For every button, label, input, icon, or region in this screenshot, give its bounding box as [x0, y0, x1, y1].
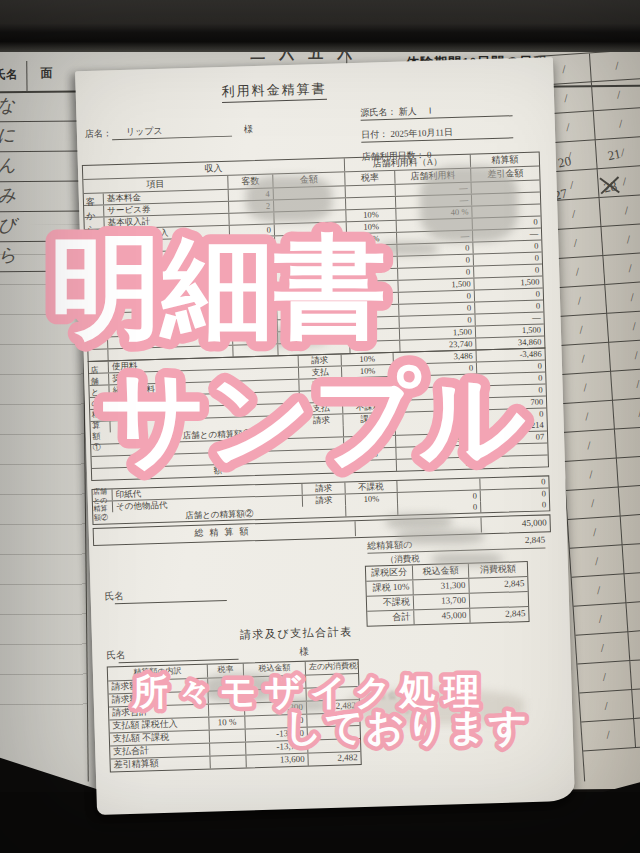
- slash-cell: /: [605, 281, 640, 313]
- name-column-header: 氏名: [0, 67, 17, 82]
- shop-name-value: リップス: [112, 123, 232, 141]
- slash-row: / /: [568, 513, 640, 549]
- slash-cell: /: [572, 574, 627, 606]
- diff-cell: 0: [474, 252, 542, 265]
- middle-name-label: 氏名: [104, 590, 123, 604]
- tax-table: 課税区分 税込金額 消費税額 課税 10% 31,300 2,845 不課税 1…: [365, 561, 530, 627]
- tax-rows: 課税 10% 31,300 2,845 不課税 13,700 合計 45,000: [366, 577, 528, 626]
- slash-cell: /: [621, 513, 640, 545]
- slash-cell: /: [630, 658, 640, 690]
- handwritten-name: に: [0, 121, 81, 152]
- payment-summary-title: 請求及び支払合計表: [240, 624, 353, 642]
- slash-cell: /: [626, 600, 640, 632]
- diff-cell: 1,500: [476, 324, 544, 337]
- slash-cell: /: [609, 339, 640, 371]
- tax-header-category: 課税区分: [366, 565, 413, 580]
- slash-cell: /: [634, 715, 640, 747]
- slash-cell: /: [607, 310, 640, 342]
- shop-label: 店名：: [85, 127, 112, 141]
- slash-cell: /: [579, 690, 634, 722]
- tax-amount-cell: 13,700: [414, 594, 470, 610]
- diff-cell: 0: [473, 240, 541, 253]
- rate-cell: [346, 504, 398, 517]
- tax-tax-cell: 2,845: [470, 607, 528, 623]
- overlay-text-mosaic-note2: しております: [282, 702, 542, 758]
- rate-cell: [346, 185, 396, 197]
- tax-category-cell: 合計: [367, 610, 414, 625]
- stage-name-value: 新人 Ｉ: [399, 106, 435, 117]
- slash-cell: /: [581, 719, 636, 751]
- slash-cell: /: [568, 516, 623, 548]
- sheet-divider: [26, 61, 28, 92]
- stage-name-line: 源氏名： 新人 Ｉ: [360, 102, 512, 121]
- date-line: 日付： 2025年10月11日: [361, 124, 513, 143]
- document-title: 利用料金精算書: [221, 80, 327, 103]
- diff-cell: 0: [475, 300, 543, 313]
- mosaic-patch: [432, 553, 502, 566]
- tax-tax-cell: [470, 592, 528, 608]
- diff-cell: 0: [474, 264, 542, 277]
- payment-rate-cell: [210, 729, 246, 742]
- payment-rate-cell: [210, 742, 246, 755]
- shop-name-line: 店名： リップス 様: [85, 122, 253, 141]
- tax-amount-cell: 45,000: [414, 609, 470, 625]
- tax-category-cell: 課税 10%: [366, 580, 413, 595]
- handwritten-name: ん: [0, 151, 81, 182]
- grand-total-label: 総精算額: [94, 521, 356, 544]
- slash-cell: /: [600, 195, 640, 227]
- slash-cell: /: [623, 542, 640, 574]
- slash-cell: /: [613, 397, 640, 429]
- note-value: 2,845: [525, 535, 546, 549]
- overlay-text-sample: サンプル: [98, 342, 578, 497]
- grand-total-value: 45,000: [481, 515, 549, 532]
- mosaic-patch: [246, 176, 332, 222]
- svg-text:サンプル: サンプル: [100, 360, 526, 476]
- mosaic-patch: [396, 530, 484, 544]
- mosaic-patch: [386, 514, 452, 529]
- slash-cell: /: [570, 545, 625, 577]
- payment-name-label: 氏名: [106, 649, 125, 663]
- payment-rate-cell: [210, 755, 246, 768]
- tax-header-amount: 税込金額: [413, 564, 469, 580]
- slash-cell: /: [615, 426, 640, 458]
- slash-cell: /: [577, 661, 632, 693]
- payment-honorific: 様: [299, 646, 309, 659]
- desk-top-edge: [0, 0, 640, 52]
- svg-text:しております: しております: [284, 706, 529, 748]
- payment-label-cell: 差引精算額: [111, 757, 211, 772]
- slash-cell: /: [592, 79, 640, 111]
- tax-category-cell: 不課税: [367, 595, 414, 610]
- header-rate: 税率: [345, 171, 395, 185]
- slash-cell: /: [632, 687, 640, 719]
- rate-cell: [346, 197, 396, 209]
- slash-row: / /: [570, 542, 640, 578]
- slash-cell: /: [590, 50, 640, 82]
- slash-cell: /: [601, 224, 640, 256]
- slash-cell: /: [603, 252, 640, 284]
- diff-cell: 1,500: [474, 276, 542, 289]
- slash-cell: /: [611, 368, 640, 400]
- slash-cell: /: [617, 455, 640, 487]
- honorific: 様: [244, 123, 253, 136]
- middle-name-underline: [115, 600, 227, 604]
- diff-cell: 0: [475, 288, 543, 301]
- stage-name-label: 源氏名：: [360, 107, 396, 118]
- slash-cell: /: [619, 484, 640, 516]
- amount-cell: 0: [398, 501, 481, 514]
- overlay-text-meisaisho: 明細書: [48, 220, 448, 360]
- date-value: 2025年10月11日: [390, 127, 453, 139]
- diff-cell: —: [475, 312, 543, 325]
- slash-cell: /: [552, 285, 607, 317]
- handwritten-name: な: [0, 91, 81, 122]
- photo-background: 二六五六 体験期間10日間の日程 氏名 面 なにんみびら / / / /: [0, 0, 640, 853]
- second-column-header: 面: [40, 65, 52, 82]
- slash-cell: /: [576, 632, 631, 664]
- handwritten-name: み: [0, 181, 82, 212]
- tax-amount-cell: 31,300: [413, 579, 469, 595]
- slash-cell: /: [594, 108, 640, 140]
- date-label: 日付：: [361, 129, 388, 140]
- tax-tax-cell: 2,845: [469, 577, 527, 593]
- svg-text:明細書: 明細書: [50, 225, 386, 350]
- diff-cell: 0: [481, 499, 549, 512]
- slash-cell: /: [625, 571, 640, 603]
- slash-cell: /: [574, 603, 629, 635]
- slash-cell: /: [628, 629, 640, 661]
